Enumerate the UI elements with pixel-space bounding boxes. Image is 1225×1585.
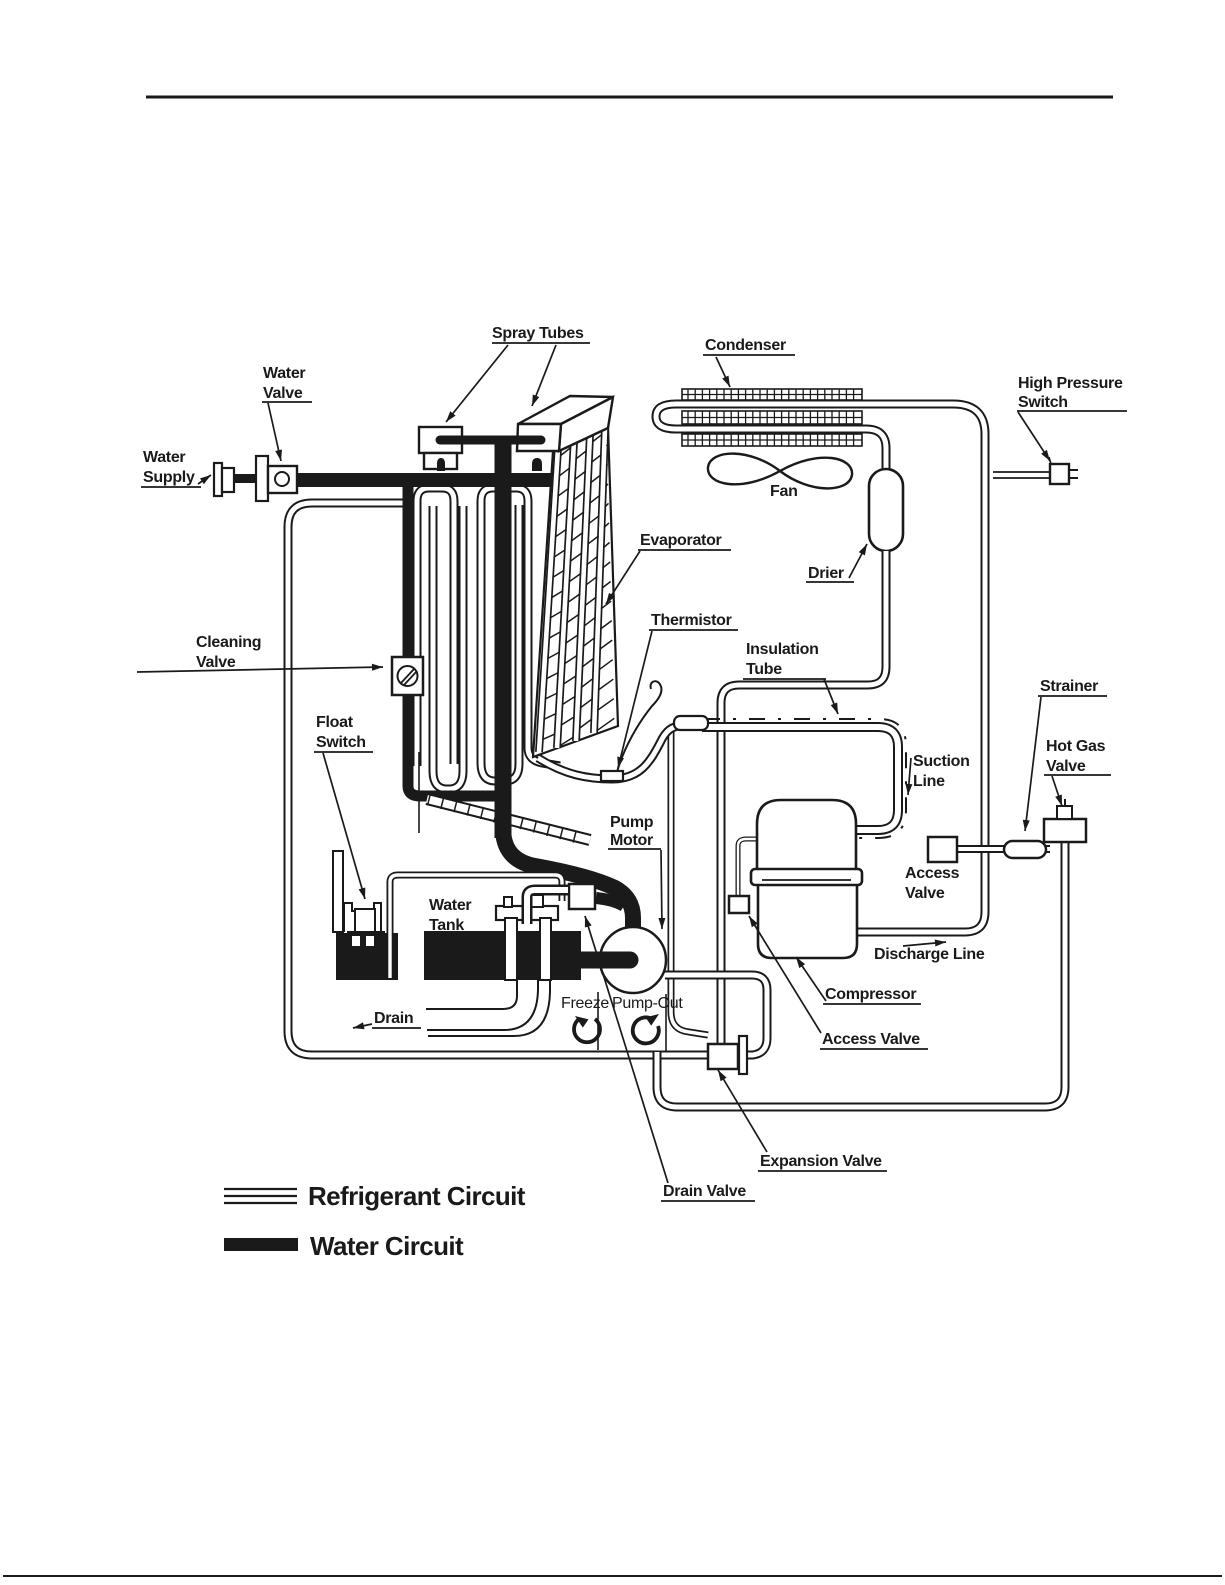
- svg-text:Thermistor: Thermistor: [651, 612, 732, 629]
- svg-text:Water Circuit: Water Circuit: [310, 1231, 464, 1261]
- svg-text:Switch: Switch: [316, 734, 366, 751]
- svg-text:Tank: Tank: [429, 917, 464, 934]
- svg-text:Motor: Motor: [610, 832, 653, 849]
- svg-text:Drier: Drier: [808, 565, 844, 582]
- svg-text:Condenser: Condenser: [705, 337, 786, 354]
- svg-text:Insulation: Insulation: [746, 641, 819, 658]
- svg-text:Suction: Suction: [913, 753, 970, 770]
- svg-text:Water: Water: [429, 897, 471, 914]
- svg-text:Fan: Fan: [770, 483, 798, 500]
- svg-text:Pump: Pump: [610, 814, 654, 831]
- svg-text:Strainer: Strainer: [1040, 678, 1098, 695]
- svg-text:Evaporator: Evaporator: [640, 532, 722, 549]
- svg-text:Spray Tubes: Spray Tubes: [492, 325, 584, 342]
- svg-text:Freeze: Freeze: [561, 995, 609, 1012]
- svg-text:Access: Access: [905, 865, 960, 882]
- svg-text:Discharge Line: Discharge Line: [874, 946, 985, 963]
- svg-text:Supply: Supply: [143, 469, 195, 486]
- svg-text:Valve: Valve: [1046, 758, 1086, 775]
- svg-text:Pump-Out: Pump-Out: [612, 995, 683, 1012]
- svg-text:Water: Water: [143, 449, 185, 466]
- svg-text:High Pressure: High Pressure: [1018, 375, 1123, 392]
- svg-text:Float: Float: [316, 714, 354, 731]
- svg-text:Cleaning: Cleaning: [196, 634, 261, 651]
- svg-text:Tube: Tube: [746, 661, 782, 678]
- svg-text:Hot Gas: Hot Gas: [1046, 738, 1106, 755]
- svg-text:Water: Water: [263, 365, 305, 382]
- svg-text:Drain Valve: Drain Valve: [663, 1183, 746, 1200]
- svg-text:Compressor: Compressor: [825, 986, 916, 1003]
- svg-text:Expansion Valve: Expansion Valve: [760, 1153, 882, 1170]
- svg-text:Line: Line: [913, 773, 945, 790]
- svg-text:Valve: Valve: [196, 654, 236, 671]
- svg-text:Refrigerant Circuit: Refrigerant Circuit: [308, 1181, 526, 1211]
- svg-text:Valve: Valve: [263, 385, 303, 402]
- svg-text:Valve: Valve: [905, 885, 945, 902]
- svg-text:Switch: Switch: [1018, 394, 1068, 411]
- svg-text:Access Valve: Access Valve: [822, 1031, 920, 1048]
- svg-text:Drain: Drain: [374, 1010, 413, 1027]
